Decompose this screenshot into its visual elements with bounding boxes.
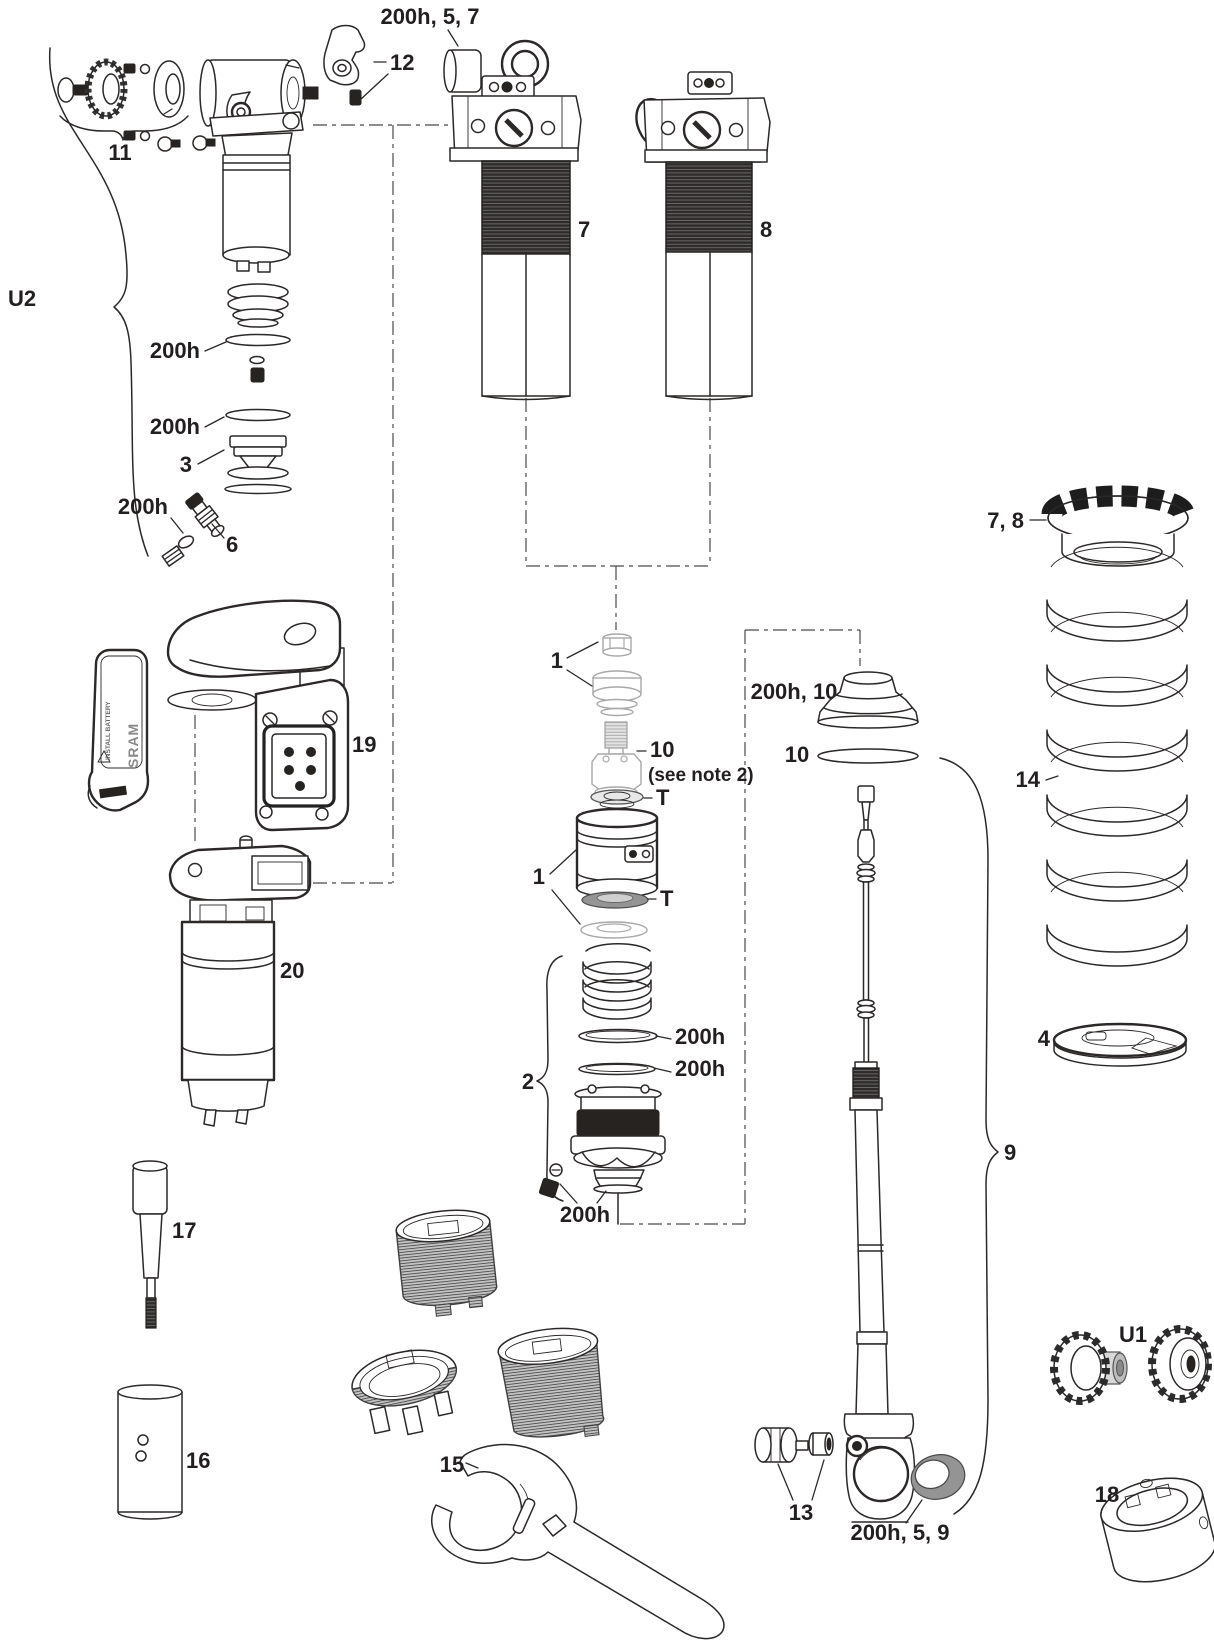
damper-piston bbox=[571, 1085, 665, 1168]
bottom-cap bbox=[188, 1080, 268, 1111]
oring-small bbox=[177, 534, 196, 551]
small-ring bbox=[250, 357, 264, 364]
label-8: 8 bbox=[760, 217, 772, 242]
coil-spring-14: 14 bbox=[1016, 547, 1187, 966]
shaft-thread-tip bbox=[853, 1068, 879, 1098]
label-200h-e: 200h bbox=[675, 1056, 725, 1081]
air-can-threads bbox=[666, 162, 752, 252]
reservoir-20: 20 bbox=[170, 836, 310, 1126]
oring-small bbox=[141, 65, 150, 74]
label-11: 11 bbox=[108, 140, 131, 165]
reservoir-body bbox=[182, 922, 274, 1080]
label-7-8: 7, 8 bbox=[987, 508, 1024, 533]
label-200h-f: 200h bbox=[560, 1202, 610, 1227]
air-can-tool-ring bbox=[347, 1342, 468, 1444]
label-200h-5-7: 200h, 5, 7 bbox=[380, 4, 479, 29]
sleeve-tool-16: 16 bbox=[118, 1385, 210, 1519]
valve-fitting bbox=[162, 546, 184, 566]
air-can-threads bbox=[482, 161, 570, 254]
head-flange bbox=[450, 148, 578, 161]
eyelet-bushing-top: 200h, 5, 7 bbox=[380, 4, 481, 92]
shaft-clamp-tool-17: 17 bbox=[133, 1161, 196, 1328]
piston-seal-band bbox=[577, 1110, 659, 1136]
oring-small bbox=[141, 132, 150, 141]
label-200h-c: 200h bbox=[118, 494, 168, 519]
main-piston-can-1b: 1 T bbox=[533, 809, 674, 938]
eyelet-bushing bbox=[906, 1449, 969, 1505]
battery-cover: SRAM INSTALL BATTERY bbox=[88, 650, 148, 810]
label-12: 12 bbox=[390, 50, 414, 75]
adjuster-knobs-u1: U1 bbox=[1054, 1322, 1208, 1401]
label-see-note-2: (see note 2) bbox=[648, 765, 754, 786]
side-port-block bbox=[252, 856, 308, 890]
label-4: 4 bbox=[1038, 1026, 1051, 1051]
pin bbox=[285, 766, 294, 775]
label-3: 3 bbox=[180, 452, 192, 477]
washer bbox=[225, 485, 291, 494]
mount-hardware-group-11: 11 bbox=[58, 61, 215, 165]
remote-lever-12: 12 bbox=[324, 26, 415, 106]
battery-warning-text: INSTALL BATTERY bbox=[105, 701, 112, 760]
u2-service-kit-bracket: U2 bbox=[8, 48, 148, 556]
label-200h-a: 200h bbox=[150, 338, 200, 363]
label-t-a: T bbox=[656, 785, 670, 810]
preload-wrench-15: 15 bbox=[432, 1445, 724, 1639]
oring bbox=[226, 410, 290, 421]
bottom-out-bumper: 200h, 10 10 bbox=[751, 672, 918, 767]
label-20: 20 bbox=[280, 958, 304, 983]
air-can-tool-top bbox=[395, 1206, 499, 1319]
sealhead-group-1a: 1 10 (see note 2) T bbox=[551, 634, 754, 810]
bolt bbox=[158, 137, 172, 151]
label-200h-d: 200h bbox=[675, 1024, 725, 1049]
valve-cube bbox=[539, 1178, 559, 1198]
label-2: 2 bbox=[522, 1069, 534, 1094]
label-14: 14 bbox=[1016, 767, 1041, 792]
brace-9 bbox=[940, 758, 998, 1514]
oring bbox=[579, 1064, 655, 1075]
pin bbox=[296, 782, 305, 791]
label-19: 19 bbox=[352, 732, 376, 757]
spring-seat-4: 4 bbox=[1038, 1024, 1186, 1066]
motor-shaft-tip bbox=[303, 87, 318, 99]
remote-damper-assembly bbox=[200, 60, 318, 272]
label-200h-b: 200h bbox=[150, 414, 200, 439]
shock-body bbox=[666, 252, 752, 396]
label-1b: 1 bbox=[533, 864, 545, 889]
shock-8: 8 bbox=[629, 72, 772, 400]
collar bbox=[190, 900, 272, 922]
motor-module-19: 19 bbox=[168, 601, 376, 830]
internals-group-2: 2 200h 200h 200h bbox=[522, 944, 725, 1227]
label-1a: 1 bbox=[551, 648, 563, 673]
left-exploded-stack: 200h 200h 3 200h 6 bbox=[118, 284, 291, 566]
ghost-adapter-10 bbox=[592, 722, 641, 797]
air-valve-6 bbox=[184, 492, 227, 540]
gland bbox=[251, 368, 264, 382]
ifp-piston-3 bbox=[228, 436, 288, 479]
label-6: 6 bbox=[226, 532, 238, 557]
pin bbox=[285, 748, 294, 757]
pin bbox=[307, 766, 316, 775]
oring bbox=[226, 335, 290, 346]
label-9: 9 bbox=[1004, 1140, 1016, 1165]
knob-right bbox=[1152, 1329, 1208, 1399]
label-18: 18 bbox=[1095, 1482, 1119, 1507]
flat-screw-head bbox=[58, 78, 74, 102]
housing bbox=[168, 601, 340, 677]
label-7: 7 bbox=[578, 217, 590, 242]
exploded-diagram-canvas: U2 11 200h 200h 3 bbox=[0, 0, 1214, 1641]
wave-spring bbox=[583, 944, 651, 1019]
lever-set-screw bbox=[350, 90, 361, 105]
label-t-b: T bbox=[660, 886, 674, 911]
label-15: 15 bbox=[440, 1452, 464, 1477]
brace-11 bbox=[60, 116, 188, 140]
ghost-nut bbox=[603, 634, 631, 656]
label-16: 16 bbox=[186, 1448, 210, 1473]
preload-collar: 7, 8 bbox=[987, 496, 1188, 566]
label-10a: 10 bbox=[650, 737, 674, 762]
set-screw bbox=[124, 64, 135, 73]
label-200h-10: 200h, 10 bbox=[751, 679, 838, 704]
knob-left bbox=[1054, 1335, 1127, 1401]
shaft-nut-13: 13 bbox=[755, 1428, 833, 1525]
diagram-page: U2 11 200h 200h 3 bbox=[0, 0, 1214, 1641]
head-flange bbox=[645, 150, 767, 162]
ghost-cap bbox=[593, 671, 641, 716]
label-17: 17 bbox=[172, 1218, 196, 1243]
label-13: 13 bbox=[789, 1500, 813, 1525]
bolt bbox=[193, 136, 207, 150]
shaft-collar bbox=[857, 1332, 887, 1344]
brand-text: SRAM bbox=[125, 723, 141, 768]
label-u1: U1 bbox=[1119, 1322, 1147, 1347]
pin bbox=[307, 748, 316, 757]
rebound-needle-rod bbox=[857, 786, 875, 1085]
shock-7: 7 bbox=[450, 41, 590, 400]
label-200h-5-9: 200h, 5, 9 bbox=[850, 1520, 949, 1545]
air-can-tool-right bbox=[496, 1323, 609, 1445]
u2-label: U2 bbox=[8, 286, 36, 311]
label-10b: 10 bbox=[785, 742, 809, 767]
lower-flange bbox=[168, 690, 256, 710]
